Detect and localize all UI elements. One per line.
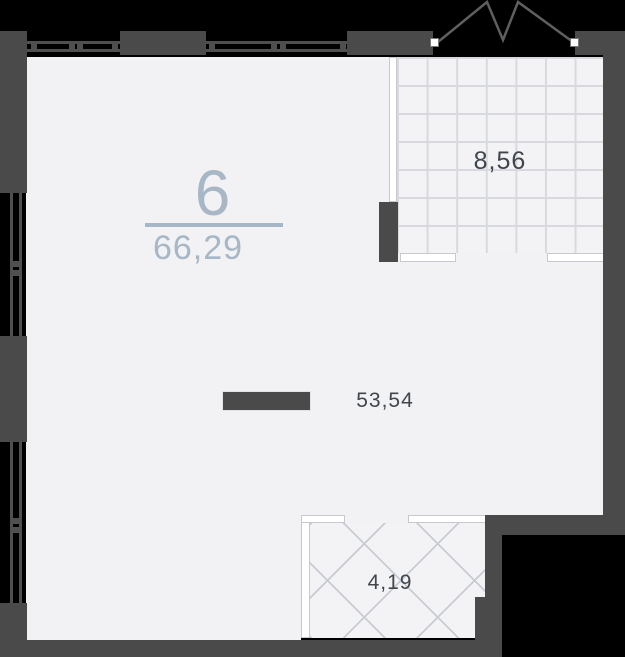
wall-bottom-right-horizontal <box>485 515 625 535</box>
wall-left-bottom-corner <box>0 603 27 657</box>
wall-balcony-right <box>485 535 502 597</box>
loggia-area-label: 8,56 <box>440 147 560 176</box>
balcony-area-label: 4,19 <box>330 571 450 595</box>
loggia-window-left <box>400 253 456 262</box>
window-hinge-right <box>570 38 579 47</box>
loggia-side-glazing <box>389 57 397 202</box>
unit-number-divider <box>145 223 283 227</box>
balcony-window-right <box>408 515 486 523</box>
wall-balcony-right-notch <box>475 597 502 640</box>
unit-total-area: 66,29 <box>118 229 278 268</box>
wall-top-pier-1 <box>120 31 206 55</box>
unit-number: 6 <box>140 161 285 225</box>
wall-right <box>603 31 625 535</box>
wall-loggia-stub <box>379 202 398 262</box>
window-left-2 <box>10 442 22 603</box>
window-left-1 <box>10 193 22 336</box>
main-room-floor-lower <box>26 515 301 640</box>
floor-plan: 6 66,29 53,54 8,56 4,19 <box>0 0 625 657</box>
wall-top-pier-2 <box>347 31 433 55</box>
main-room-area-label: 53,54 <box>325 389 445 413</box>
window-top-1 <box>27 41 120 52</box>
window-hinge-left <box>430 38 439 47</box>
balcony-window-left <box>301 515 345 523</box>
wall-left-middle <box>0 336 27 442</box>
wall-left-top <box>0 31 27 193</box>
window-swing-icon <box>430 0 580 45</box>
kitchen-island-block <box>223 392 310 410</box>
loggia-window-right <box>547 253 604 262</box>
window-top-2 <box>206 41 347 52</box>
wall-bottom <box>26 640 502 657</box>
balcony-side-glazing <box>301 515 310 638</box>
